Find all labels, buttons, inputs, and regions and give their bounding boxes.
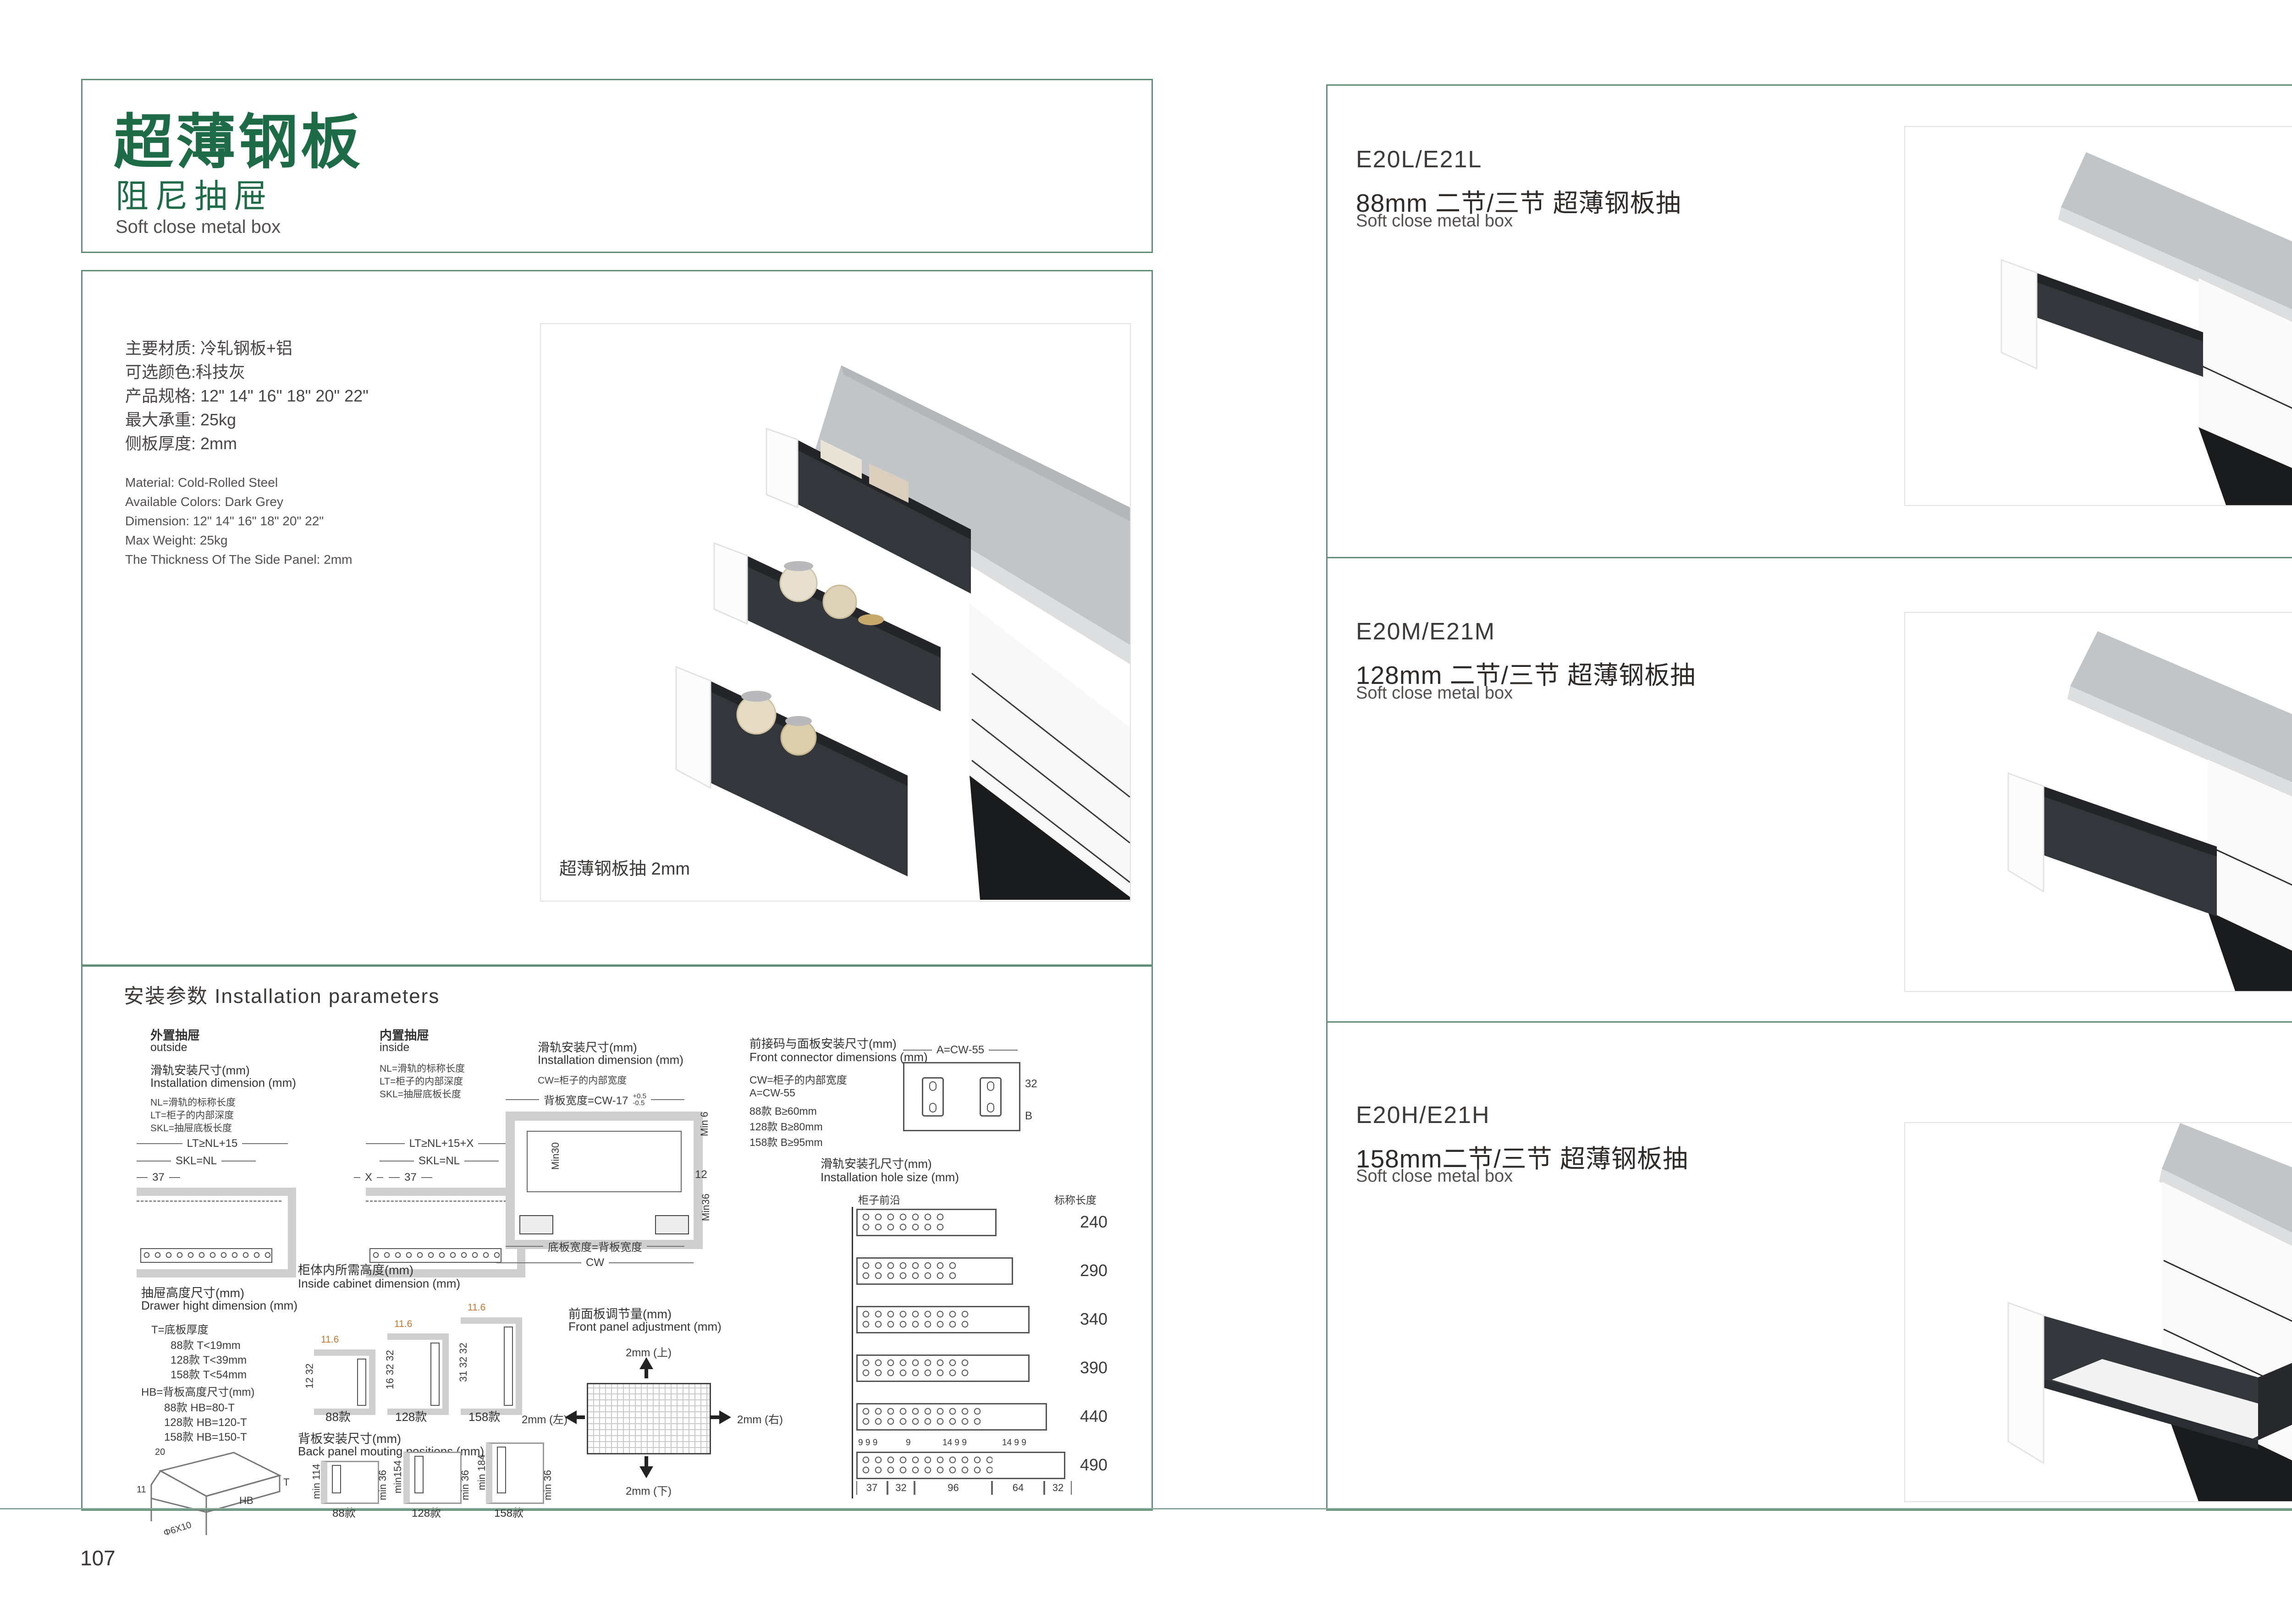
width-front-diagram — [506, 1112, 703, 1249]
front-connector-bracket — [922, 1077, 944, 1117]
drawer-iso-sketch — [133, 1443, 289, 1549]
install-box: 安装参数 Installation parameters 外置抽屉 outsid… — [81, 965, 1153, 1511]
inside-dim-x: X — [354, 1171, 381, 1184]
t-row: 88款 T<19mm — [171, 1336, 241, 1352]
cabinet-v3-diagram — [461, 1317, 522, 1415]
outside-note: SKL=抽屉底板长度 — [150, 1121, 232, 1134]
section-divider — [1328, 1021, 2292, 1023]
back-v2-label: 128款 — [412, 1504, 441, 1520]
product-code: E20L/E21L — [1356, 146, 1482, 173]
width-min36: Min36 — [700, 1194, 712, 1221]
cabinet-v2-top: 11.6 — [394, 1319, 412, 1330]
arrow-right-icon — [719, 1410, 731, 1424]
page-subtitle-en: Soft close metal box — [116, 218, 281, 236]
front-panel-hatch — [587, 1383, 711, 1454]
specs-en: Material: Cold-Rolled Steel Available Co… — [125, 473, 352, 569]
hb-label: HB=背板高度尺寸(mm) — [141, 1383, 254, 1399]
arrow-left-icon — [565, 1410, 577, 1424]
hb-row: 128款 HB=120-T — [164, 1413, 247, 1429]
iso-11: 11 — [137, 1485, 146, 1495]
width-12: 12 — [695, 1168, 707, 1181]
inside-note: SKL=抽屉底板长度 — [380, 1087, 461, 1101]
section-divider — [1328, 557, 2292, 558]
arrow-down-icon — [639, 1466, 653, 1478]
rail-holes — [860, 1406, 981, 1428]
connector-b: B — [1025, 1110, 1032, 1123]
spec-line-en: Available Colors: Dark Grey — [125, 492, 352, 512]
iso-20: 20 — [155, 1447, 165, 1458]
outside-label-en: outside — [150, 1041, 187, 1054]
product-code: E20H/E21H — [1356, 1101, 1490, 1129]
inside-dim-37: 37 — [389, 1171, 432, 1184]
width-cw-dim: CW — [496, 1256, 694, 1269]
t-label: T=底板厚度 — [151, 1321, 209, 1337]
page-number-left: 107 — [80, 1546, 116, 1570]
outside-note: LT=柜子的内部深度 — [150, 1108, 234, 1122]
main-box: 主要材质: 冷轧钢板+铝 可选颜色:科技灰 产品规格: 12" 14" 16" … — [81, 270, 1153, 966]
product-image-e20m — [1904, 612, 2292, 992]
specs-cn: 主要材质: 冷轧钢板+铝 可选颜色:科技灰 产品规格: 12" 14" 16" … — [125, 336, 369, 456]
cabinet-v2-side: 16 32 32 — [384, 1350, 396, 1389]
connector-note: 158款 B≥95mm — [749, 1134, 823, 1149]
arrow-right-stem — [710, 1415, 719, 1419]
dashed-line — [366, 1200, 511, 1202]
hb-row: 158款 HB=150-T — [164, 1428, 247, 1444]
arrow-up-stem — [645, 1368, 648, 1378]
cabinet-v1-diagram — [314, 1349, 375, 1415]
rail-holes — [860, 1454, 992, 1476]
cabinet-v3-side: 31 32 32 — [457, 1343, 469, 1382]
page-subtitle: 阻尼抽屉 — [116, 180, 273, 213]
width-min6: Min 6 — [699, 1112, 711, 1136]
outside-dim-skl: SKL=NL — [137, 1155, 256, 1167]
cabinet-v2-label: 128款 — [395, 1408, 427, 1425]
height-title-en: Drawer hight dimension (mm) — [141, 1299, 298, 1313]
drawer-render-128 — [1905, 613, 2292, 991]
outside-note: NL=滑轨的标称长度 — [150, 1095, 236, 1109]
page-right: E20L/E21L 88mm 二节/三节 超薄钢板抽 Soft close me… — [1245, 0, 2292, 1624]
back-v3-label: 158款 — [494, 1504, 523, 1520]
rail-290 — [856, 1257, 1013, 1285]
back-v2-o3: min 36 — [459, 1470, 471, 1500]
back-v1-label: 88款 — [332, 1504, 356, 1520]
spec-line-en: Max Weight: 25kg — [125, 531, 352, 550]
kitchen-drawers-render — [541, 324, 1130, 901]
adjust-down-label: 2mm (下) — [626, 1482, 672, 1498]
inside-dim-skl: SKL=NL — [380, 1155, 499, 1167]
inside-note: LT=柜子的内部深度 — [380, 1074, 463, 1088]
outside-cabinet-diagram — [137, 1188, 296, 1277]
spec-line: 侧板厚度: 2mm — [125, 432, 369, 456]
back-v3-diagram — [486, 1442, 544, 1504]
front-connector-bracket — [980, 1077, 1002, 1117]
rail-440 — [856, 1403, 1047, 1431]
arrow-up-icon — [639, 1357, 653, 1369]
tolerance-down: -0.5 — [633, 1100, 646, 1107]
drawer-render-88 — [1905, 127, 2292, 505]
back-v1-diagram — [321, 1461, 379, 1504]
product-name-en: Soft close metal box — [1356, 1167, 1513, 1186]
bottom-dim: 32 — [1044, 1481, 1072, 1495]
catalog-spread: { "colors":{"green":"#1e6b47","border_gr… — [0, 0, 2292, 1624]
connector-note: CW=柜子的内部宽度 — [749, 1071, 847, 1087]
spec-line-en: Material: Cold-Rolled Steel — [125, 473, 352, 492]
product-image-e20h — [1904, 1122, 2292, 1502]
connector-diagram — [903, 1062, 1020, 1131]
cabinet-v3-top: 11.6 — [468, 1302, 485, 1313]
rail-mechanism — [519, 1215, 553, 1234]
drawer-render-158 — [1905, 1123, 2292, 1501]
spec-line: 主要材质: 冷轧钢板+铝 — [125, 336, 369, 360]
bottom-rule — [0, 1508, 2292, 1509]
cabinet-v2-diagram — [387, 1333, 449, 1415]
rail-length: 490 — [1080, 1455, 1107, 1475]
rail-length: 240 — [1080, 1212, 1107, 1232]
arrow-left-stem — [576, 1415, 585, 1419]
slide-rail — [140, 1248, 272, 1263]
bottom-dim: 96 — [915, 1481, 992, 1495]
connector-title-cn: 前接码与面板安装尺寸(mm) — [749, 1035, 897, 1051]
cabinet-v1-side: 12 32 — [304, 1363, 316, 1388]
cabinet-front-edge-line — [852, 1207, 853, 1498]
rail-length: 340 — [1080, 1310, 1107, 1329]
tolerance-up: +0.5 — [633, 1093, 646, 1100]
rail-length: 290 — [1080, 1261, 1107, 1280]
spec-line: 最大承重: 25kg — [125, 408, 369, 432]
holes-length-label: 标称长度 — [1054, 1191, 1096, 1207]
width-min30: Min30 — [550, 1142, 562, 1170]
products-box: E20L/E21L 88mm 二节/三节 超薄钢板抽 Soft close me… — [1326, 84, 2292, 1511]
product-name-en: Soft close metal box — [1356, 683, 1513, 703]
holes-front-edge: 柜子前沿 — [858, 1191, 900, 1207]
front-title-en: Front panel adjustment (mm) — [568, 1320, 722, 1334]
back-v2-diagram — [403, 1452, 462, 1504]
back-v2-o1: min154 — [392, 1460, 404, 1493]
back-v3-o3: min 36 — [542, 1470, 554, 1500]
connector-note: 128款 B≥80mm — [749, 1118, 823, 1134]
adjust-left-label: 2mm (左) — [522, 1410, 567, 1426]
rail-490 — [856, 1452, 1065, 1479]
holes-title-cn: 滑轨安装孔尺寸(mm) — [821, 1155, 932, 1172]
outside-dim-lt: LT≥NL+15 — [137, 1137, 288, 1150]
connector-top-dim: A=CW-55 — [903, 1044, 1018, 1057]
hb-row: 88款 HB=80-T — [164, 1398, 235, 1415]
install-title: 安装参数 Installation parameters — [124, 980, 440, 1009]
spec-line: 产品规格: 12" 14" 16" 18" 20" 22" — [125, 384, 369, 408]
rail-340 — [856, 1306, 1030, 1333]
bottom-dim: 37 — [856, 1481, 887, 1495]
spec-line-en: The Thickness Of The Side Panel: 2mm — [125, 550, 352, 569]
t-row: 128款 T<39mm — [171, 1351, 247, 1367]
bottom-dims-row: 3732966432 — [856, 1481, 1072, 1495]
cabinet-title-en: Inside cabinet dimension (mm) — [298, 1277, 460, 1291]
rail-length: 390 — [1080, 1358, 1107, 1377]
product-image-e20l — [1904, 126, 2292, 506]
arrow-down-stem — [645, 1456, 648, 1466]
outside-dim-37: 37 — [137, 1171, 180, 1184]
small-dim: 9 9 9 — [858, 1438, 877, 1448]
rail-holes — [860, 1309, 970, 1331]
inside-dim-lt: LT≥NL+15+X — [366, 1137, 517, 1150]
bottom-dim: 32 — [887, 1481, 915, 1495]
cabinet-v3-label: 158款 — [468, 1408, 500, 1425]
cabinet-v1-top: 11.6 — [321, 1334, 339, 1345]
width-note: CW=柜子的内部宽度 — [538, 1073, 627, 1087]
spec-line: 可选颜色:科技灰 — [125, 360, 369, 384]
product-code: E20M/E21M — [1356, 618, 1495, 645]
small-dim: 14 9 9 — [1002, 1438, 1026, 1448]
iso-hb: HB — [239, 1495, 253, 1507]
title-box: 超薄钢板 阻尼抽屉 Soft close metal box — [81, 79, 1153, 253]
connector-32: 32 — [1025, 1078, 1037, 1090]
inside-note: NL=滑轨的标称长度 — [380, 1061, 465, 1075]
dashed-line — [137, 1200, 281, 1202]
product-name-en: Soft close metal box — [1356, 211, 1513, 231]
connector-note: 88款 B≥60mm — [749, 1102, 817, 1118]
cabinet-v1-label: 88款 — [325, 1408, 351, 1425]
rail-holes — [860, 1211, 948, 1233]
rail-240 — [856, 1209, 997, 1236]
rail-mechanism — [655, 1215, 689, 1234]
rail-holes — [860, 1357, 970, 1379]
product-photo: 超薄钢板抽 2mm — [540, 323, 1131, 902]
bottom-dim: 64 — [992, 1481, 1044, 1495]
photo-caption: 超薄钢板抽 2mm — [559, 854, 690, 880]
outside-dim-en: Installation dimension (mm) — [150, 1076, 296, 1090]
width-top-dim: 背板宽度=CW-17 +0.5 -0.5 — [506, 1091, 684, 1107]
t-row: 158款 T<54mm — [171, 1365, 247, 1382]
inside-label-en: inside — [380, 1041, 409, 1054]
connector-note: A=CW-55 — [749, 1087, 795, 1099]
page-left: 超薄钢板 阻尼抽屉 Soft close metal box 主要材质: 冷轧钢… — [0, 0, 1245, 1624]
connector-title-en: Front connector dimensions (mm) — [749, 1050, 928, 1064]
small-dim: 9 — [906, 1438, 911, 1448]
iso-t: T — [283, 1476, 289, 1488]
width-bottom-dim: 底板宽度=背板宽度 — [506, 1238, 684, 1254]
page-title: 超薄钢板 — [114, 112, 363, 172]
holes-title-en: Installation hole size (mm) — [821, 1170, 959, 1184]
back-v1-o3: min 36 — [377, 1470, 389, 1500]
rail-holes — [860, 1260, 959, 1282]
spec-line-en: Dimension: 12" 14" 16" 18" 20" 22" — [125, 512, 352, 531]
rail-390 — [856, 1354, 1030, 1382]
width-title-en: Installation dimension (mm) — [538, 1053, 683, 1067]
rail-length: 440 — [1080, 1407, 1107, 1426]
cabinet-title-cn: 柜体内所需高度(mm) — [298, 1260, 413, 1278]
small-dim: 14 9 9 — [942, 1438, 967, 1448]
adjust-right-label: 2mm (右) — [737, 1410, 783, 1426]
